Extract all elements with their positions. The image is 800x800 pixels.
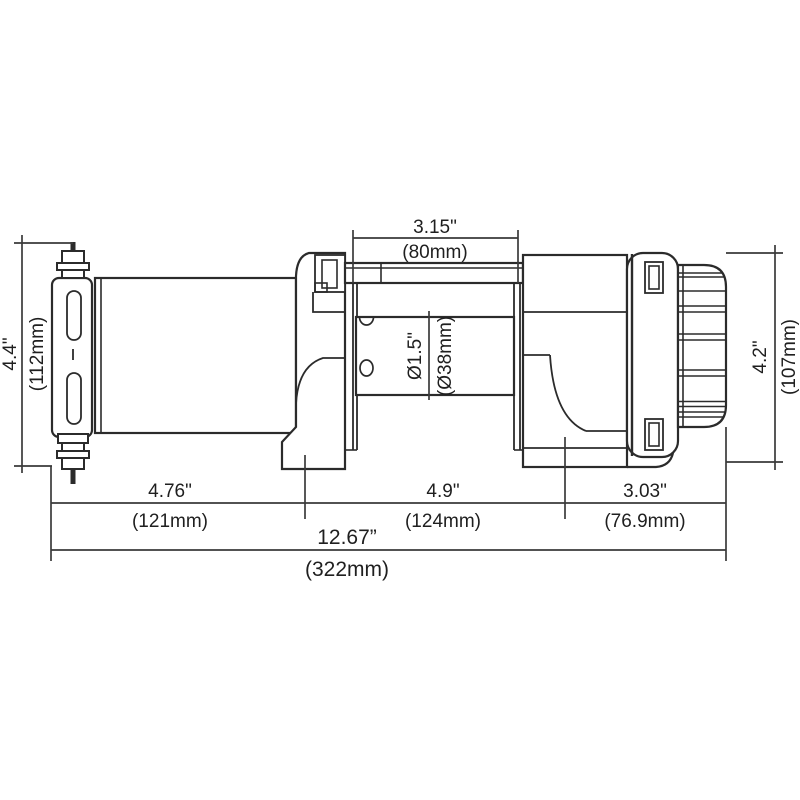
gear-housing: [523, 253, 678, 467]
dim-drum-mm: (Ø38mm): [435, 316, 456, 396]
winch-dimension-diagram: 3.15" (80mm) 4.4" (112mm) 4.2" (107mm) Ø…: [0, 0, 800, 800]
gear-housing-body: [523, 255, 627, 467]
dim-right-mm: (107mm): [779, 319, 800, 395]
bolt-collar: [62, 270, 84, 278]
dim-drum-inches: Ø1.5": [405, 332, 426, 380]
bottom-bolt: [57, 434, 89, 484]
dim-overall-mm: (322mm): [305, 558, 389, 581]
dim-bottom-middle-mm: (124mm): [405, 511, 481, 532]
diagram-canvas: 3.15" (80mm) 4.4" (112mm) 4.2" (107mm) Ø…: [0, 0, 800, 800]
motor-end-cap: [678, 265, 726, 427]
bolt-nut: [62, 458, 84, 469]
drum-flange-right: [514, 283, 523, 450]
bolt-collar: [62, 443, 84, 451]
winch-drawing: [52, 242, 726, 484]
dim-overall-width: 12.67” (322mm): [51, 526, 726, 581]
dim-bottom-right-mm: (76.9mm): [604, 511, 685, 532]
dim-bottom-middle-inches: 4.9": [426, 481, 459, 502]
dim-top-inches: 3.15": [413, 217, 457, 238]
tie-bar: [345, 263, 523, 283]
bolt-nut: [62, 251, 84, 263]
top-bolt: [57, 242, 89, 278]
bolt-washer: [57, 451, 89, 458]
dim-left-inches: 4.4": [0, 337, 21, 370]
bolt-collar: [58, 434, 88, 443]
end-cap-outline: [678, 265, 726, 427]
dim-bottom-right-inches: 3.03": [623, 481, 667, 502]
dim-bottom-left-inches: 4.76": [148, 481, 192, 502]
dim-bottom-left-mm: (121mm): [132, 511, 208, 532]
bolt-washer: [57, 263, 89, 270]
dim-overall-inches: 12.67”: [317, 526, 377, 549]
dim-top-mm: (80mm): [402, 242, 467, 263]
mounting-plate: [52, 278, 92, 437]
dim-right-height: 4.2" (107mm): [726, 245, 800, 470]
dim-right-inches: 4.2": [750, 340, 771, 373]
dim-left-mm: (112mm): [27, 317, 48, 392]
motor-housing: [95, 278, 296, 433]
